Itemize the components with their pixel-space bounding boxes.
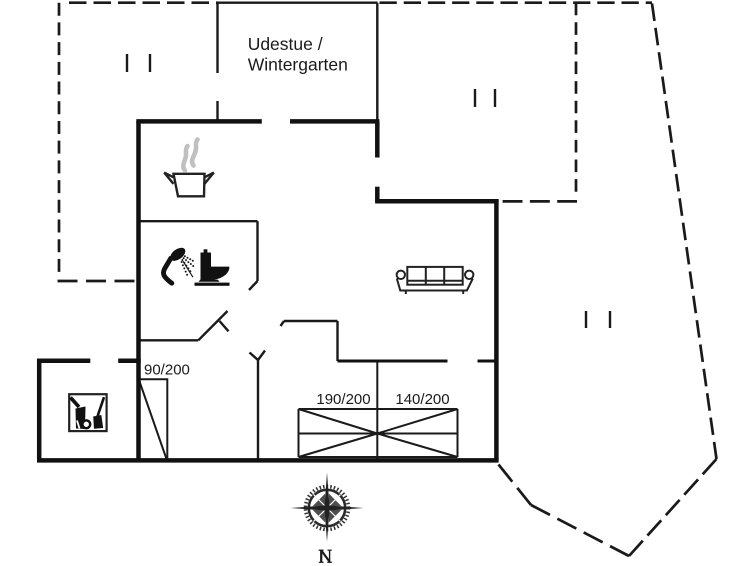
svg-text:Wintergarten: Wintergarten — [248, 55, 348, 75]
svg-text:140/200: 140/200 — [395, 391, 449, 408]
svg-text:190/200: 190/200 — [316, 391, 370, 408]
svg-text:90/200: 90/200 — [144, 362, 190, 379]
svg-text:Udestue /: Udestue / — [248, 34, 323, 54]
